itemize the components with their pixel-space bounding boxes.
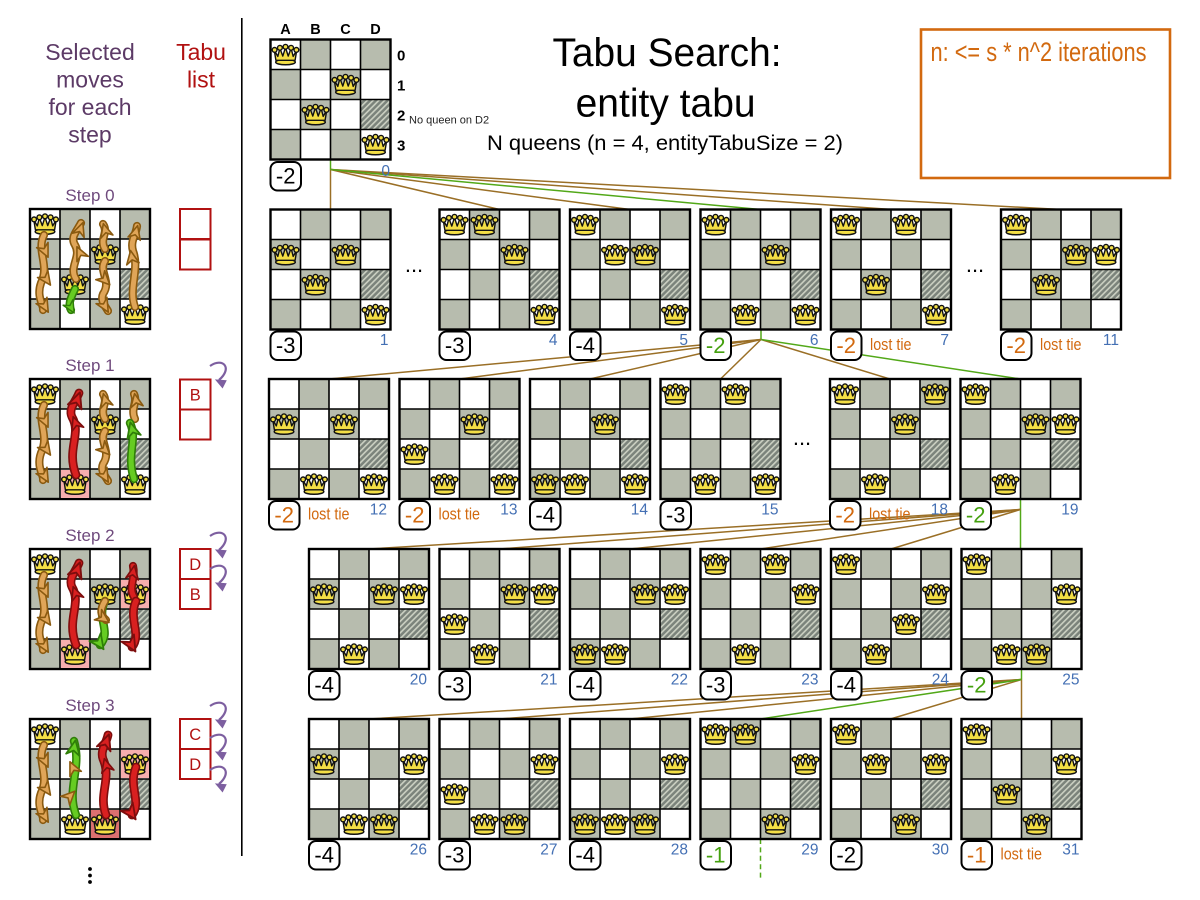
svg-text:6: 6 — [810, 332, 819, 349]
svg-text:Step 1: Step 1 — [65, 356, 114, 375]
svg-text:21: 21 — [540, 672, 557, 689]
svg-text:-2: -2 — [1006, 333, 1026, 358]
svg-text:lost tie: lost tie — [308, 506, 350, 524]
svg-text:30: 30 — [932, 842, 950, 859]
svg-text:lost tie: lost tie — [1040, 336, 1082, 354]
svg-text:-2: -2 — [836, 333, 856, 358]
svg-text:-2: -2 — [405, 503, 425, 528]
svg-text:Step 3: Step 3 — [65, 696, 114, 715]
svg-text:14: 14 — [631, 502, 649, 519]
svg-text:D: D — [189, 756, 201, 774]
svg-text:-2: -2 — [966, 503, 986, 528]
svg-text:...: ... — [966, 252, 984, 277]
svg-text:-2: -2 — [967, 673, 987, 698]
svg-text:Step 2: Step 2 — [65, 526, 114, 545]
svg-text:-4: -4 — [575, 843, 595, 868]
svg-text:5: 5 — [679, 332, 688, 349]
svg-text:lost tie: lost tie — [869, 506, 911, 524]
svg-text:18: 18 — [931, 502, 948, 519]
svg-text:entity tabu: entity tabu — [576, 82, 756, 126]
svg-text:-3: -3 — [445, 673, 465, 698]
svg-text:23: 23 — [801, 672, 818, 689]
svg-text:C: C — [189, 726, 201, 744]
svg-text:-3: -3 — [706, 673, 726, 698]
svg-text:B: B — [190, 586, 201, 604]
svg-text:28: 28 — [671, 842, 688, 859]
svg-text:B: B — [190, 387, 201, 405]
svg-text:29: 29 — [801, 842, 818, 859]
svg-text:lost tie: lost tie — [1001, 846, 1043, 864]
svg-text:-4: -4 — [314, 673, 334, 698]
svg-text:-2: -2 — [835, 503, 855, 528]
svg-text:-3: -3 — [445, 843, 465, 868]
svg-text:-1: -1 — [706, 843, 726, 868]
svg-text:-1: -1 — [967, 843, 987, 868]
svg-text:Selectedmovesfor eachstep: Selectedmovesfor eachstep — [45, 39, 135, 148]
svg-text:7: 7 — [940, 332, 949, 349]
svg-text:Step 0: Step 0 — [65, 186, 114, 205]
svg-text:22: 22 — [671, 672, 688, 689]
svg-text:...: ... — [793, 425, 811, 450]
svg-text:-3: -3 — [276, 333, 296, 358]
svg-text:27: 27 — [540, 842, 557, 859]
svg-text:-2: -2 — [706, 333, 726, 358]
svg-text:0123: 0123 — [397, 48, 405, 155]
svg-text:4: 4 — [549, 332, 558, 349]
svg-text:11: 11 — [1103, 332, 1119, 349]
svg-text:-4: -4 — [314, 843, 334, 868]
svg-text:No queen on D2: No queen on D2 — [409, 115, 489, 127]
svg-text:Tabu Search:: Tabu Search: — [553, 31, 782, 75]
svg-text:-4: -4 — [575, 673, 595, 698]
svg-text:-3: -3 — [666, 503, 686, 528]
svg-text:-4: -4 — [575, 333, 595, 358]
svg-text:1: 1 — [380, 332, 389, 349]
svg-text:lost tie: lost tie — [870, 336, 912, 354]
svg-text:19: 19 — [1061, 502, 1078, 519]
svg-text:Tabulist: Tabulist — [176, 39, 226, 93]
svg-text:-2: -2 — [274, 503, 294, 528]
svg-text:31: 31 — [1062, 842, 1079, 859]
svg-text:24: 24 — [932, 672, 950, 689]
svg-text:D: D — [189, 556, 201, 574]
svg-text:-4: -4 — [836, 673, 856, 698]
svg-text:0: 0 — [381, 163, 390, 180]
svg-text:26: 26 — [410, 842, 427, 859]
svg-text:-2: -2 — [836, 843, 856, 868]
svg-text:15: 15 — [761, 502, 778, 519]
svg-text:N queens (n = 4, entityTabuSiz: N queens (n = 4, entityTabuSize = 2) — [487, 131, 843, 155]
svg-text:-2: -2 — [276, 164, 296, 189]
svg-text:n: <= s * n^2 iterations: n: <= s * n^2 iterations — [931, 37, 1147, 67]
svg-text:...: ... — [405, 252, 423, 277]
svg-text:-4: -4 — [535, 503, 555, 528]
svg-text:20: 20 — [410, 672, 428, 689]
svg-text:25: 25 — [1062, 672, 1079, 689]
svg-text:ABCD: ABCD — [280, 22, 380, 38]
svg-text:13: 13 — [500, 502, 517, 519]
svg-text:-3: -3 — [445, 333, 465, 358]
svg-text:12: 12 — [370, 502, 387, 519]
svg-text:lost tie: lost tie — [439, 506, 481, 524]
